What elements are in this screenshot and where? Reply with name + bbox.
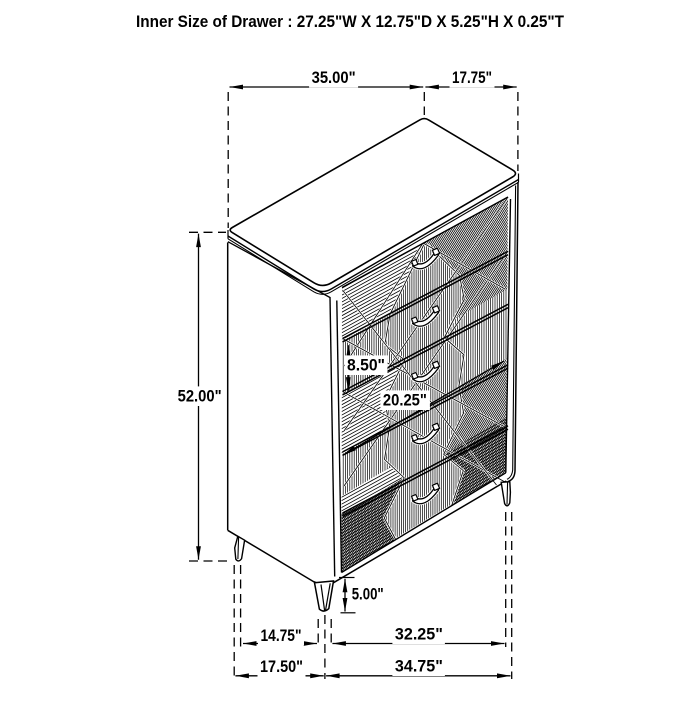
svg-text:8.50": 8.50" xyxy=(347,356,385,375)
svg-text:17.50": 17.50" xyxy=(260,657,303,676)
svg-text:32.25": 32.25" xyxy=(395,625,443,644)
svg-text:52.00": 52.00" xyxy=(178,387,222,406)
svg-text:Inner Size of Drawer : 27.25"W: Inner Size of Drawer : 27.25"W X 12.75"D… xyxy=(136,13,564,31)
svg-text:5.00": 5.00" xyxy=(352,585,384,604)
svg-text:17.75": 17.75" xyxy=(452,68,492,87)
svg-text:14.75": 14.75" xyxy=(261,626,302,645)
svg-text:20.25": 20.25" xyxy=(383,391,427,410)
svg-text:34.75": 34.75" xyxy=(395,657,443,676)
svg-text:35.00": 35.00" xyxy=(312,68,356,87)
